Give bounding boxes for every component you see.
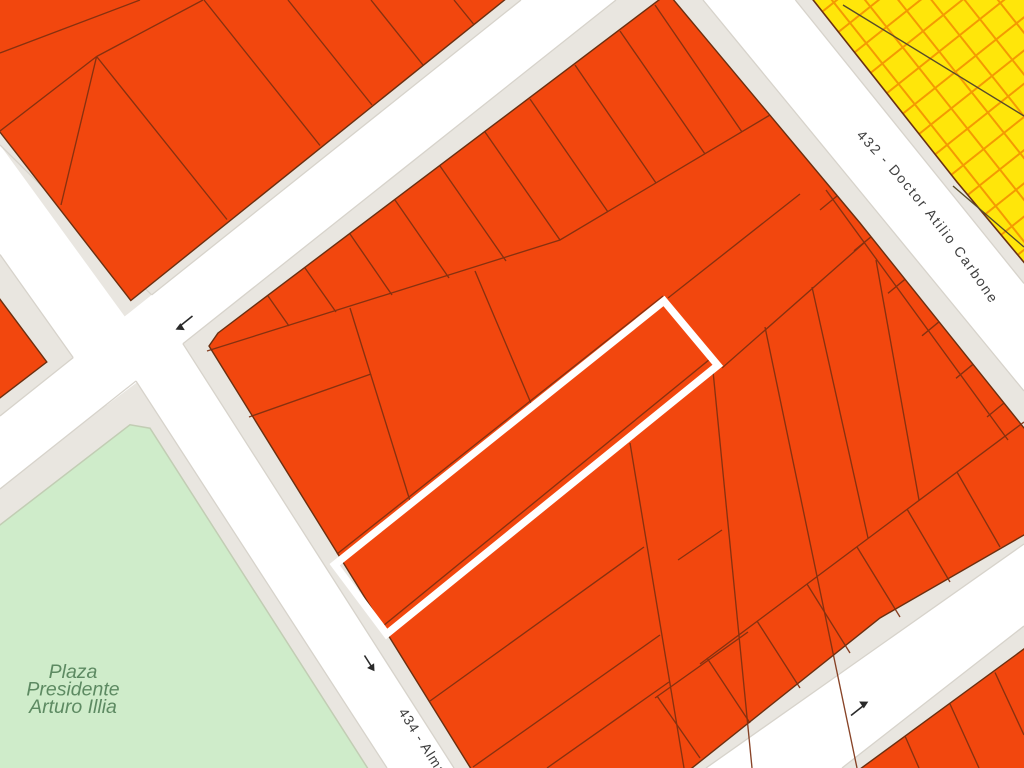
svg-text:Arturo Illia: Arturo Illia xyxy=(28,696,117,718)
